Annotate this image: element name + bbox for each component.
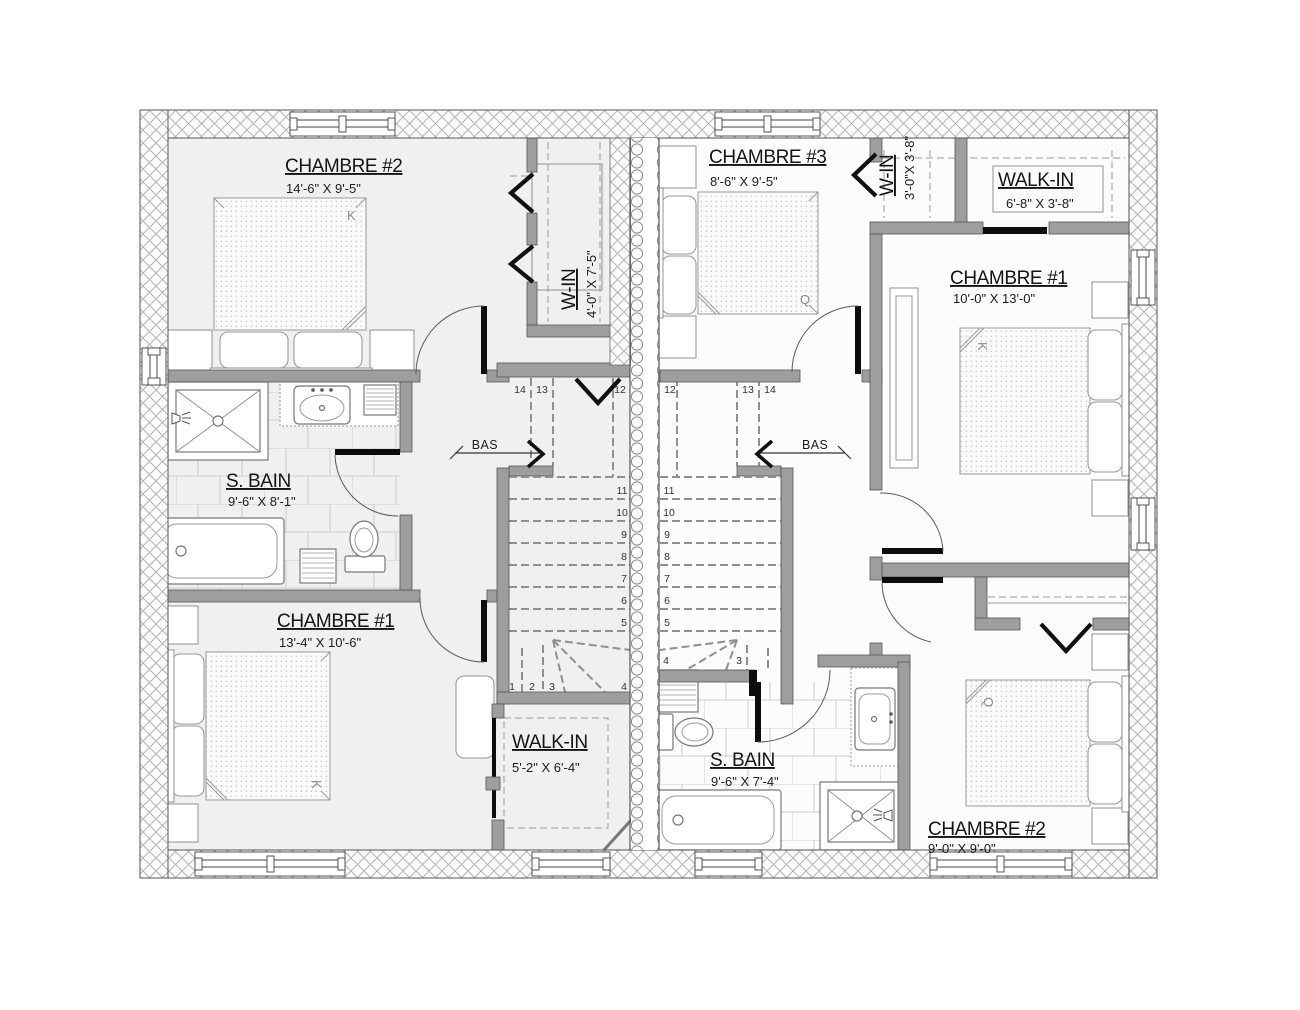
tread-number: 14 bbox=[764, 384, 776, 396]
tub-drain bbox=[176, 546, 186, 556]
nightstand bbox=[1092, 808, 1128, 844]
tread-number: 12 bbox=[614, 384, 626, 396]
room-label: CHAMBRE #3 bbox=[709, 147, 826, 168]
stair-left-half-wall bbox=[509, 466, 553, 476]
mattress bbox=[214, 198, 366, 330]
shower-drain bbox=[213, 416, 223, 426]
tread-number: 10 bbox=[663, 507, 675, 519]
room-label: S. BAIN bbox=[226, 471, 291, 492]
tread-number: 6 bbox=[664, 595, 670, 607]
room-label: CHAMBRE #1 bbox=[277, 611, 394, 632]
side-cabinet-left-bath bbox=[300, 549, 336, 583]
headboard bbox=[1122, 676, 1129, 812]
mattress bbox=[206, 652, 330, 800]
pocket-door-walkin-left bbox=[492, 718, 496, 818]
pillow bbox=[1088, 682, 1122, 742]
room-dims: 13'-4" X 10'-6" bbox=[279, 635, 362, 650]
pillow bbox=[220, 332, 288, 368]
room-label: WALK-IN bbox=[998, 170, 1074, 191]
nightstand bbox=[1092, 282, 1128, 318]
window bbox=[290, 112, 395, 136]
room-dims: 3'-0"X 3'-8" bbox=[902, 136, 917, 200]
room-dims: 8'-6" X 9'-5" bbox=[710, 174, 778, 189]
room-dims: 5'-2" X 6'-4" bbox=[512, 760, 580, 775]
tread-number: 6 bbox=[621, 595, 627, 607]
room-label: CHAMBRE #2 bbox=[285, 156, 402, 177]
stair-right-half-wall bbox=[737, 466, 781, 476]
window bbox=[715, 112, 820, 136]
door-leaf-chambre2-left bbox=[481, 306, 487, 374]
pillow bbox=[1088, 744, 1122, 804]
nightstand bbox=[1092, 634, 1128, 670]
pillow bbox=[1088, 330, 1122, 400]
room-label: WALK-IN bbox=[512, 732, 588, 753]
room-dims: 4'-0" X 7'-5" bbox=[584, 250, 599, 318]
room-label: W-IN bbox=[877, 155, 898, 196]
tread-number: 2 bbox=[529, 681, 535, 693]
window bbox=[695, 852, 762, 876]
bas-label: BAS bbox=[802, 438, 828, 452]
tread-number: 3 bbox=[549, 681, 555, 693]
room-walkin-right-top: WALK-IN 6'-8" X 3'-8" bbox=[998, 170, 1074, 211]
nightstand bbox=[1092, 480, 1128, 516]
pillow bbox=[1088, 402, 1122, 472]
nightstand bbox=[370, 330, 414, 372]
door-leaf-sbain-right bbox=[755, 682, 761, 742]
room-dims: 14'-6" X 9'-5" bbox=[286, 181, 361, 196]
pillow bbox=[662, 256, 696, 314]
sink-vanity-left bbox=[280, 382, 398, 426]
tread-number: 7 bbox=[664, 573, 670, 585]
room-sbain-left: S. BAIN 9'-6" X 8'-1" bbox=[226, 471, 296, 509]
tread-number: 12 bbox=[664, 384, 676, 396]
tread-number: 11 bbox=[664, 485, 675, 497]
bed-size-label: Q bbox=[800, 292, 810, 307]
dresser-chambre1-right bbox=[890, 288, 918, 468]
vanity-cabinet bbox=[364, 385, 396, 415]
pillow bbox=[172, 726, 204, 796]
window bbox=[142, 348, 166, 385]
bathtub-right bbox=[655, 790, 781, 850]
tread-number: 8 bbox=[621, 551, 627, 563]
tread-number: 3 bbox=[736, 655, 742, 667]
headboard bbox=[168, 650, 174, 802]
shower-drain bbox=[852, 811, 862, 821]
right-exterior-wall bbox=[1129, 110, 1157, 878]
room-sbain-right: S. BAIN 9'-6" X 7'-4" bbox=[710, 750, 779, 789]
tread-number: 8 bbox=[664, 551, 670, 563]
door-leaf-sbain-left bbox=[335, 449, 400, 455]
tread-number: 4 bbox=[663, 655, 669, 667]
room-dims: 9'-6" X 7'-4" bbox=[711, 774, 779, 789]
door-leaf-chambre3 bbox=[855, 306, 861, 374]
room-label: S. BAIN bbox=[710, 750, 775, 771]
window bbox=[532, 852, 610, 876]
nightstand bbox=[164, 606, 198, 644]
sliding-door-walkin-right bbox=[983, 227, 1047, 234]
bed-size-label: K bbox=[975, 342, 990, 351]
tread-number: 9 bbox=[664, 529, 670, 541]
tread-number: 4 bbox=[621, 681, 627, 693]
room-label: CHAMBRE #1 bbox=[950, 268, 1067, 289]
room-dims: 9'-0" X 9'-0" bbox=[928, 841, 996, 856]
shower-left bbox=[168, 382, 268, 460]
door-leaf-chambre1-left bbox=[481, 600, 487, 662]
room-label: CHAMBRE #2 bbox=[928, 819, 1045, 840]
tread-number: 10 bbox=[616, 507, 628, 519]
window bbox=[1131, 250, 1155, 305]
floor-plan-page: BAS BAS 1 2 3 4 5 6 7 8 9 10 11 12 13 14… bbox=[0, 0, 1300, 1005]
nightstand bbox=[168, 330, 212, 372]
floor-plan-drawing: BAS BAS 1 2 3 4 5 6 7 8 9 10 11 12 13 14… bbox=[0, 0, 1300, 1005]
window bbox=[1131, 498, 1155, 550]
tread-number: 5 bbox=[621, 617, 627, 629]
pocket-door-handle bbox=[486, 777, 500, 790]
door-leaf-chambre2-right bbox=[882, 577, 943, 583]
room-dims: 9'-6" X 8'-1" bbox=[228, 494, 296, 509]
tread-number: 14 bbox=[514, 384, 526, 396]
nightstand bbox=[164, 804, 198, 842]
bas-label: BAS bbox=[472, 438, 498, 452]
tread-number: 13 bbox=[742, 384, 754, 396]
sink-vanity-right bbox=[851, 668, 898, 766]
bathtub-left bbox=[156, 518, 284, 584]
tread-number: 7 bbox=[621, 573, 627, 585]
tread-number: 1 bbox=[509, 681, 515, 693]
dresser-chambre1-left bbox=[456, 676, 494, 758]
bed-size-label: Q bbox=[981, 697, 996, 707]
tread-number: 13 bbox=[536, 384, 548, 396]
shower-right bbox=[820, 782, 902, 850]
pillow bbox=[294, 332, 362, 368]
headboard bbox=[1122, 324, 1129, 476]
window bbox=[195, 852, 345, 876]
tread-number: 9 bbox=[621, 529, 627, 541]
door-leaf-chambre1-right bbox=[882, 548, 943, 554]
tread-number: 11 bbox=[617, 485, 628, 497]
pillow bbox=[662, 196, 696, 254]
room-dims: 6'-8" X 3'-8" bbox=[1006, 196, 1074, 211]
nightstand bbox=[658, 146, 696, 188]
room-dims: 10'-0" X 13'-0" bbox=[953, 291, 1036, 306]
room-label: W-IN bbox=[559, 269, 580, 310]
bed-size-label: K bbox=[347, 208, 356, 223]
bed-size-label: K bbox=[309, 780, 324, 789]
pillow bbox=[172, 654, 204, 724]
left-exterior-wall bbox=[140, 110, 168, 878]
nightstand bbox=[658, 316, 696, 358]
tub-drain bbox=[673, 815, 683, 825]
tread-number: 5 bbox=[664, 617, 670, 629]
